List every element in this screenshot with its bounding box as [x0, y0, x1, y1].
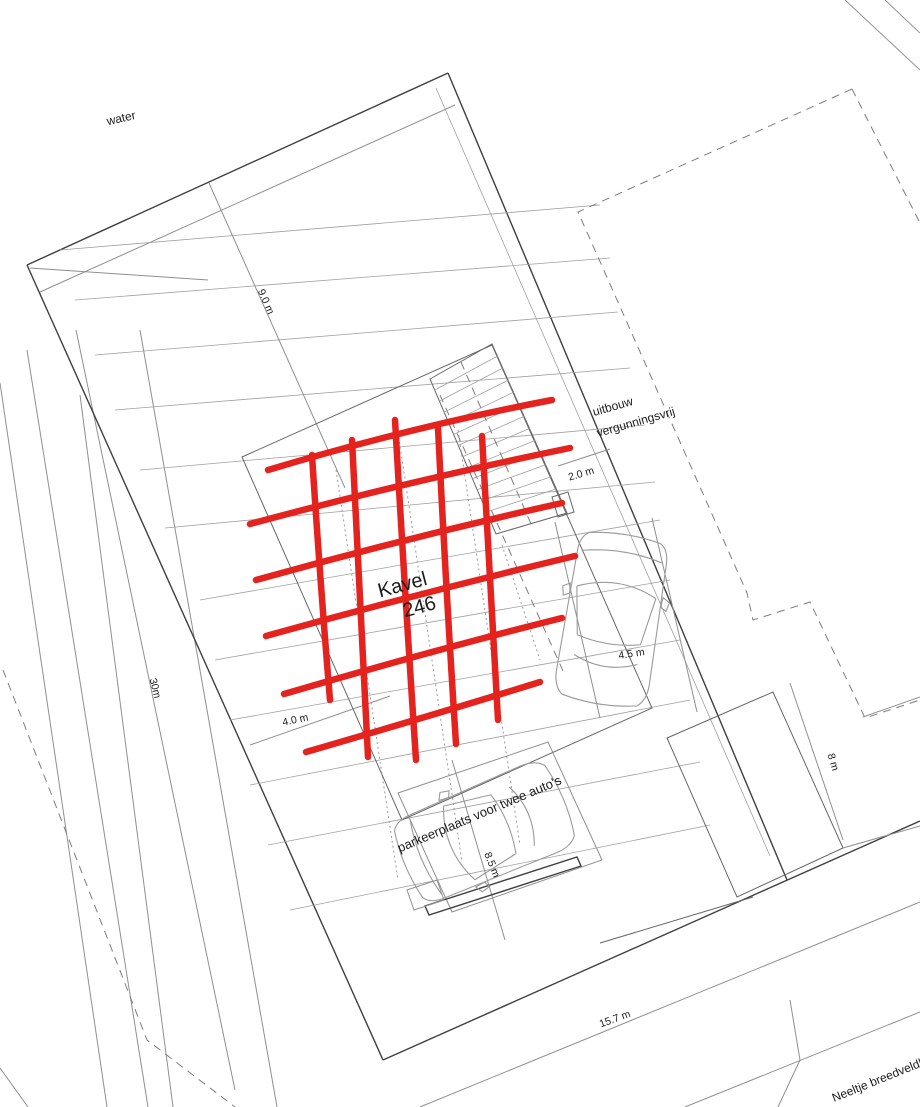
dim-8-5: 8.5 m [481, 850, 502, 879]
survey-lines-upper [60, 205, 655, 528]
street-label: Neeltje breedveldkad [830, 1050, 920, 1105]
plot-boundary [27, 73, 920, 1060]
dimension-lines [209, 183, 920, 1107]
road-lines-left [0, 330, 277, 1107]
dim-4-5: 4.5 m [618, 646, 646, 662]
parking-label: parkeerplaats voor twee auto's [395, 772, 564, 855]
water-label: water [104, 108, 137, 128]
site-plan-drawing: water 9.0 m uitbouw vergunningsvrij 2.0 … [0, 0, 920, 1107]
uitbouw-label-line1: uitbouw [591, 394, 635, 419]
neighbour-parcel-dashed [578, 0, 920, 718]
dim-8: 8 m [825, 752, 842, 772]
car-top-right [545, 526, 678, 712]
dim-2-0: 2.0 m [567, 465, 596, 484]
dim-9-0: 9.0 m [255, 287, 277, 316]
site-plan-page: water 9.0 m uitbouw vergunningsvrij 2.0 … [0, 0, 920, 1107]
dim-30: 30m [147, 677, 164, 700]
